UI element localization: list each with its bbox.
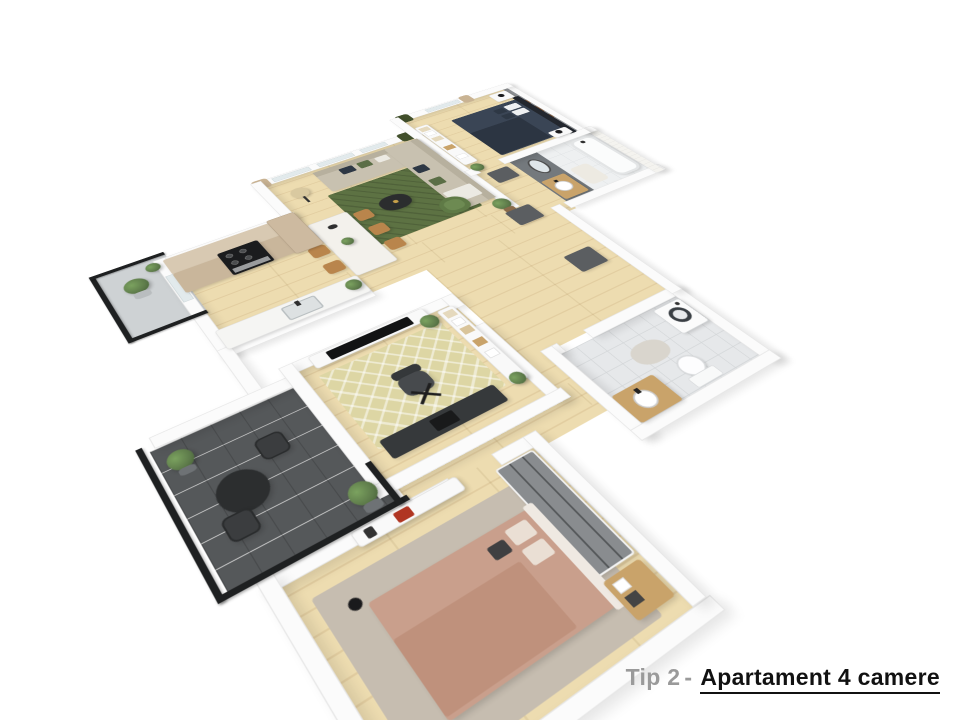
floor-plan-render: Tip 2-Apartament 4 camere bbox=[0, 0, 962, 720]
caption-type-label: Tip 2 bbox=[626, 664, 681, 690]
caption-title: Apartament 4 camere bbox=[700, 664, 940, 694]
caption-separator: - bbox=[684, 664, 692, 690]
caption: Tip 2-Apartament 4 camere bbox=[626, 664, 940, 691]
apartment-3d-plan bbox=[0, 59, 962, 720]
